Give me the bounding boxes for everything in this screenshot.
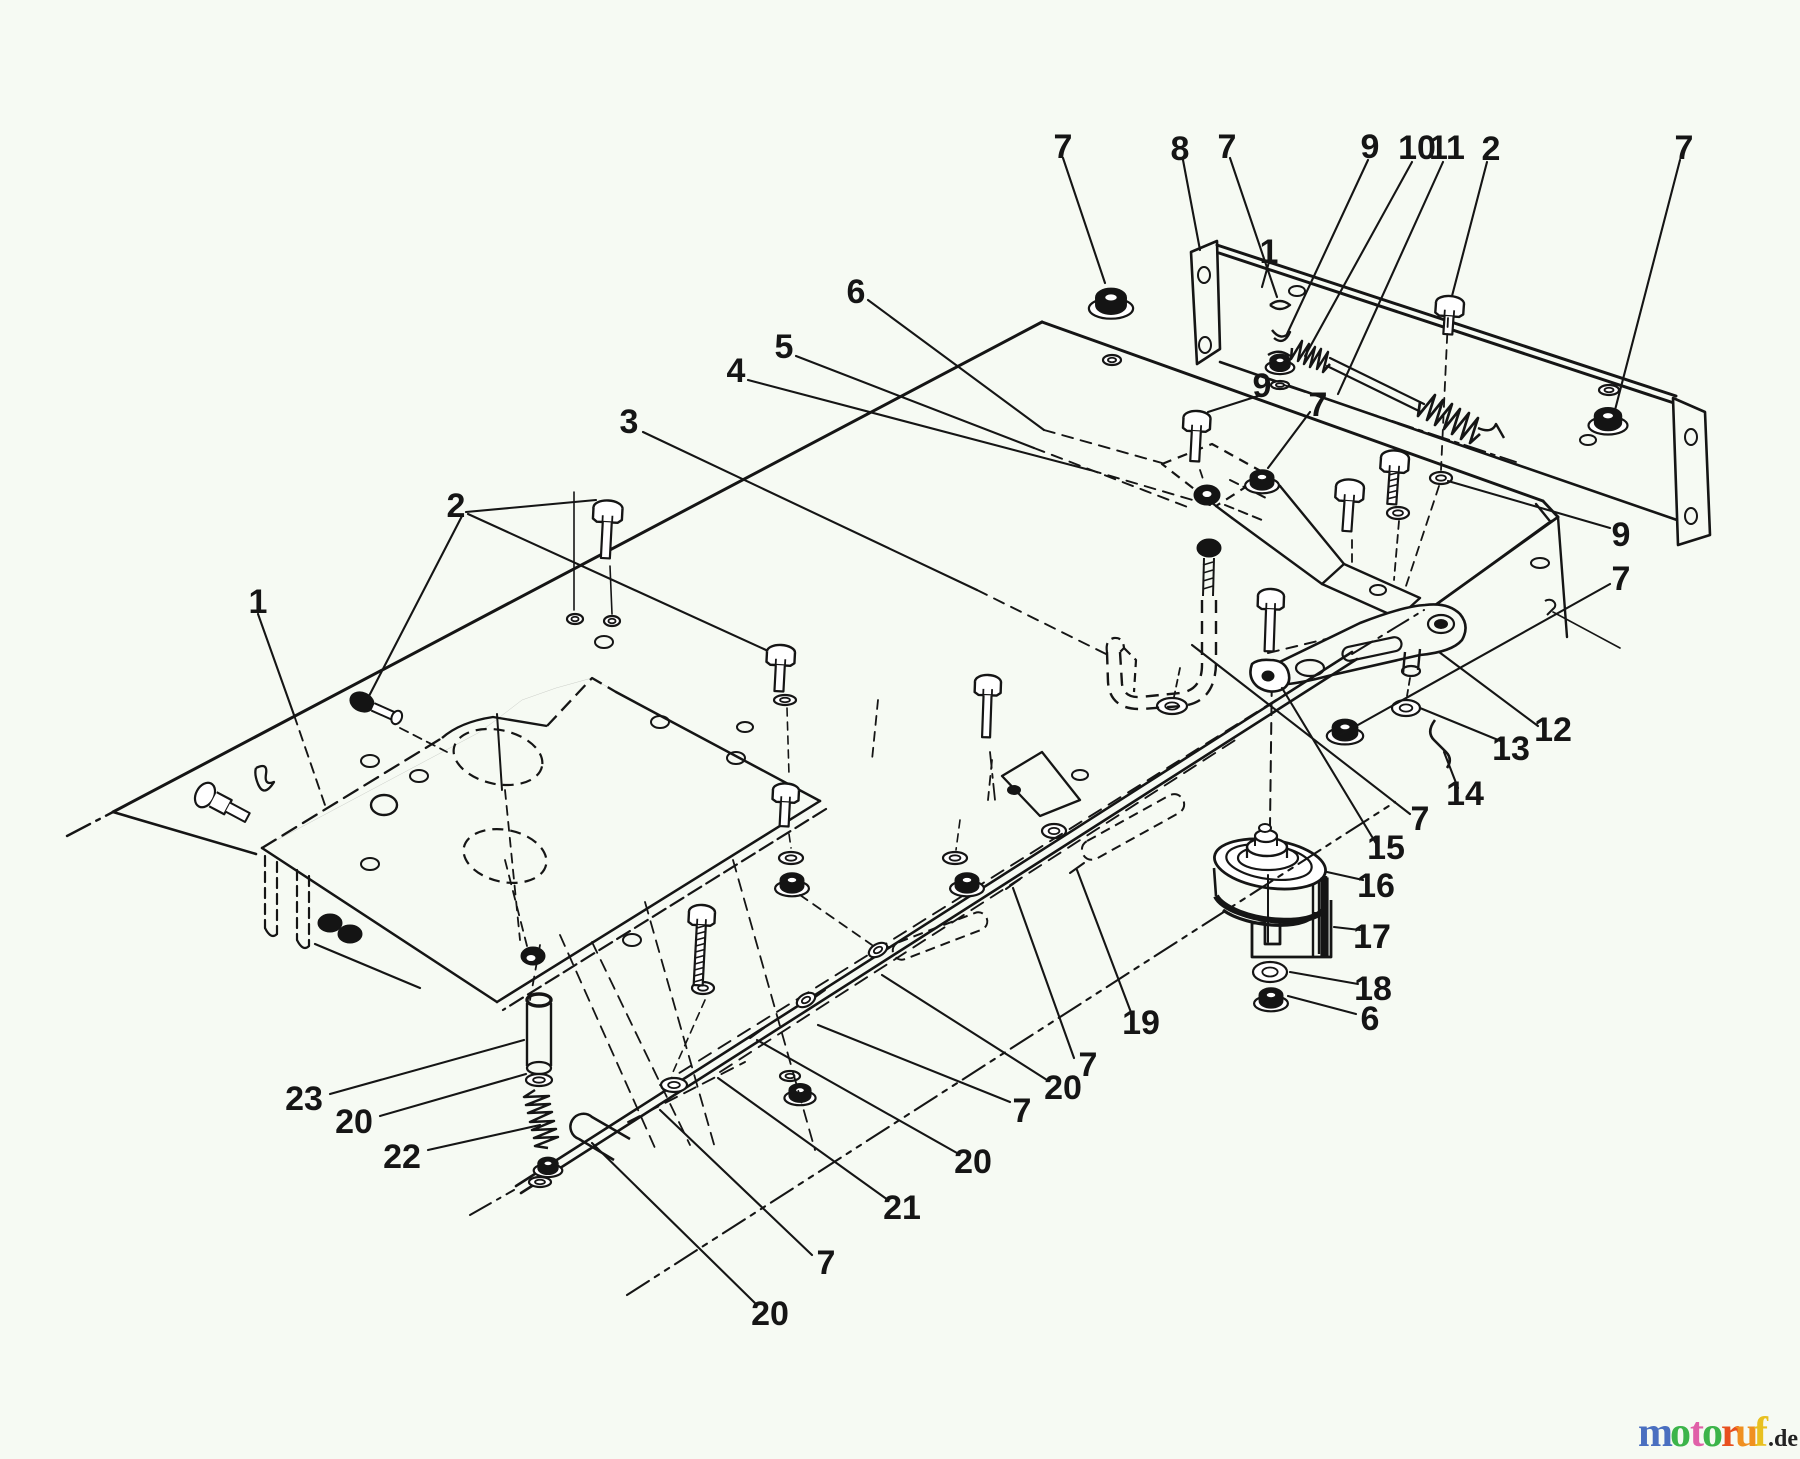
svg-text:20: 20 — [954, 1143, 992, 1181]
svg-text:19: 19 — [1122, 1004, 1160, 1042]
svg-text:14: 14 — [1446, 775, 1484, 813]
svg-text:20: 20 — [1044, 1069, 1082, 1107]
svg-text:20: 20 — [335, 1103, 373, 1141]
svg-text:7: 7 — [817, 1244, 836, 1282]
svg-text:8: 8 — [1171, 130, 1190, 168]
svg-text:7: 7 — [1013, 1092, 1032, 1130]
svg-text:9: 9 — [1612, 516, 1631, 554]
svg-text:1: 1 — [249, 583, 268, 621]
svg-text:22: 22 — [383, 1138, 421, 1176]
svg-text:12: 12 — [1534, 711, 1572, 749]
svg-text:7: 7 — [1675, 129, 1694, 167]
svg-text:2: 2 — [1482, 130, 1501, 168]
svg-text:6: 6 — [847, 273, 866, 311]
svg-text:5: 5 — [775, 328, 794, 366]
svg-text:m: m — [1638, 1410, 1673, 1456]
svg-text:4: 4 — [727, 352, 746, 390]
svg-text:7: 7 — [1612, 560, 1631, 598]
svg-text:9: 9 — [1253, 367, 1272, 405]
svg-text:o: o — [1702, 1410, 1723, 1456]
svg-text:11: 11 — [1429, 129, 1465, 167]
svg-text:21: 21 — [883, 1189, 921, 1227]
svg-text:9: 9 — [1361, 128, 1380, 166]
svg-text:7: 7 — [1411, 800, 1430, 838]
svg-text:7: 7 — [1218, 128, 1237, 166]
svg-text:16: 16 — [1357, 867, 1395, 905]
svg-text:7: 7 — [1309, 386, 1328, 424]
svg-text:2: 2 — [447, 487, 466, 525]
svg-text:17: 17 — [1353, 918, 1391, 956]
svg-text:6: 6 — [1361, 1000, 1380, 1038]
svg-text:3: 3 — [620, 403, 639, 441]
svg-text:15: 15 — [1367, 829, 1405, 867]
svg-text:.de: .de — [1768, 1426, 1798, 1452]
svg-text:23: 23 — [285, 1080, 323, 1118]
svg-text:20: 20 — [751, 1295, 789, 1333]
svg-text:f: f — [1754, 1410, 1769, 1456]
svg-text:1: 1 — [1260, 233, 1279, 271]
svg-text:7: 7 — [1054, 128, 1073, 166]
svg-text:o: o — [1670, 1410, 1691, 1456]
svg-text:13: 13 — [1492, 730, 1530, 768]
